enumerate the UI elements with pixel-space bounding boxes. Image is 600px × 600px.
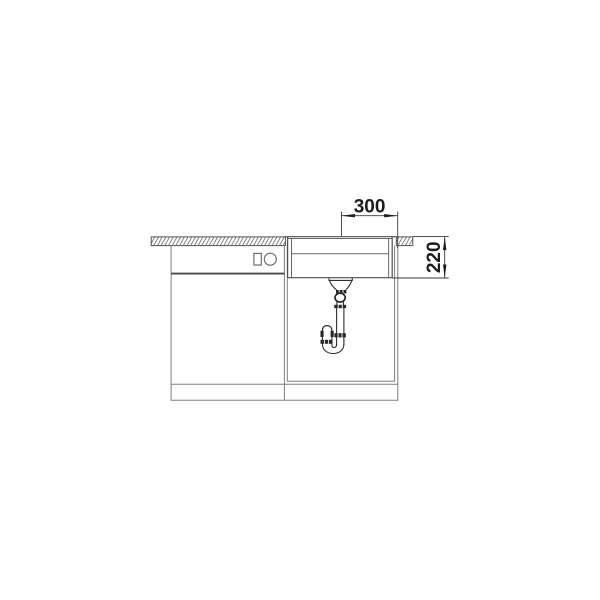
svg-text:220: 220 (424, 241, 445, 273)
svg-text:300: 300 (354, 197, 386, 218)
